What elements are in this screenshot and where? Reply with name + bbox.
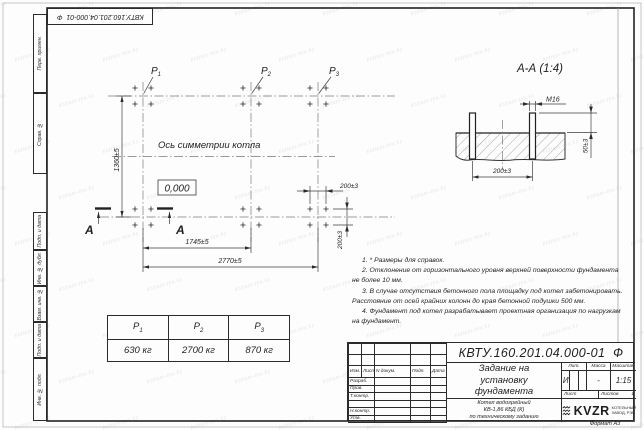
note-3: 3. В случае отсутствия бетонного пола пл… xyxy=(352,287,624,307)
svg-text:1745±5: 1745±5 xyxy=(185,239,208,246)
title-block-signatures: Изм. Лист N докум. Подп. Дата Разраб. Пр… xyxy=(348,343,447,423)
lit-cell-3 xyxy=(579,371,587,391)
margin-block-sprav-no: Справ. № xyxy=(33,93,47,174)
signature-row xyxy=(349,400,447,408)
dim-thread: М16 xyxy=(520,97,566,112)
logo-text: KVZR xyxy=(574,404,610,418)
signature-header-row: Изм. Лист N докум. Подп. Дата xyxy=(349,366,447,378)
loads-table-header: Р1 Р2 Р3 xyxy=(108,316,290,340)
corner-stamp: КВТУ.160.201.04.000-01 Ф xyxy=(47,8,153,25)
svg-text:М16: М16 xyxy=(546,97,560,104)
load-value-p3: 870 кг xyxy=(229,340,290,362)
manufacturer-logo: KVZR КОТЕЛЬНЫЙ ЗАВОД, РЭП xyxy=(562,399,636,422)
note-1: 1. * Размеры для справок. xyxy=(352,256,624,266)
svg-text:200±3: 200±3 xyxy=(339,183,358,190)
drawing-number: КВТУ.160.201.04.000-01 Ф xyxy=(446,343,635,363)
dim-bolt-y: 200±3 xyxy=(333,197,353,250)
loads-table: Р1 Р2 Р3 630 кг 2700 кг 870 кг xyxy=(107,315,290,362)
margin-block-vzam-inv: Взам. инв. № xyxy=(33,286,47,322)
sheets-cell: Листов 1 xyxy=(599,391,636,399)
margin-block-inv-podl: Инв. № подл. xyxy=(33,358,47,421)
sheet-label: Лист xyxy=(562,391,599,399)
elevation-mark: 0,000 xyxy=(158,180,196,195)
spring-coil-icon xyxy=(562,404,572,418)
logo-subtitle: КОТЕЛЬНЫЙ ЗАВОД, РЭП xyxy=(612,406,636,416)
signature-row: Утв. xyxy=(349,415,447,423)
section-view: А-А (1:4) М16 xyxy=(456,63,597,181)
load-label-p1: Р1 xyxy=(151,66,161,78)
margin-block-podp-data-1: Подп. и дата xyxy=(33,212,47,250)
loads-col-p3: Р3 xyxy=(229,316,290,340)
signature-row: Т.контр. xyxy=(349,393,447,401)
svg-text:1360±5: 1360±5 xyxy=(114,148,121,171)
scale-value: 1:15 xyxy=(611,371,636,391)
load-value-p2: 2700 кг xyxy=(168,340,229,362)
format-label: Формат А3 xyxy=(560,421,644,427)
loads-col-p2: Р2 xyxy=(168,316,229,340)
title-block: Изм. Лист N докум. Подп. Дата Разраб. Пр… xyxy=(347,342,634,421)
section-cut-marks: А А xyxy=(84,209,185,238)
load-label-p3: Р3 xyxy=(329,66,340,78)
svg-text:200±3: 200±3 xyxy=(492,168,511,175)
symmetry-axis-label: Ось симметрии котла xyxy=(158,140,260,151)
svg-text:0,000: 0,000 xyxy=(164,184,189,195)
margin-block-inv-dubl: Инв. № дубл. xyxy=(33,250,47,286)
lit-cell-2 xyxy=(570,371,578,391)
svg-text:2770±5: 2770±5 xyxy=(217,258,241,265)
dim-bolt-x: 200±3 xyxy=(297,183,358,204)
signature-row: Разраб. xyxy=(349,378,447,386)
drawing-sheet: kotlam-tex.kzkotlam-tex.kzkotlam-tex.kzk… xyxy=(0,0,644,430)
section-letter-right: А xyxy=(175,223,185,237)
corner-stamp-number: КВТУ.160.201.04.000-01 Ф xyxy=(57,13,144,20)
plan-view: Р1 Р2 Р3 Ось симметрии котла 0,000 1360±… xyxy=(84,66,395,272)
signature-row: Пров. xyxy=(349,385,447,393)
mass-value: - xyxy=(587,371,611,391)
revision-row xyxy=(349,344,447,355)
margin-block-podp-data-2: Подп. и дата xyxy=(33,322,47,358)
sheets-count: 1 xyxy=(631,391,634,398)
load-label-p2: Р2 xyxy=(261,66,272,78)
section-letter-left: А xyxy=(84,223,94,237)
dim-spans: 1745±5 2770±5 xyxy=(143,228,318,272)
revision-row xyxy=(349,355,447,366)
load-value-p1: 630 кг xyxy=(108,340,169,362)
lit-header: Лит. xyxy=(562,363,587,371)
section-title: А-А (1:4) xyxy=(516,63,563,75)
drawing-title: Задание на установку фундамента xyxy=(446,363,561,399)
title-block-right: Лит. Масса Масштаб И - 1:15 Лист Листов … xyxy=(561,363,635,422)
loads-table-values: 630 кг 2700 кг 870 кг xyxy=(108,340,290,362)
lit-value: И xyxy=(562,371,570,391)
notes: 1. * Размеры для справок. 2. Отклонение … xyxy=(352,256,624,327)
note-2: 2. Отклонение от горизонтального уровня … xyxy=(352,266,624,286)
signature-row: Н.контр. xyxy=(349,408,447,416)
note-4: 4. Фундамент под котел разрабатывает про… xyxy=(352,307,624,327)
svg-text:200±3: 200±3 xyxy=(337,231,344,250)
margin-block-perv-primen: Перв. примен. xyxy=(33,14,47,93)
product-description: Котел водогрейный КВ-1,86 КБД (К) по тех… xyxy=(446,399,561,422)
loads-col-p1: Р1 xyxy=(108,316,169,340)
mass-header: Масса xyxy=(587,363,611,371)
svg-text:50±3: 50±3 xyxy=(583,138,590,153)
scale-header: Масштаб xyxy=(611,363,636,371)
